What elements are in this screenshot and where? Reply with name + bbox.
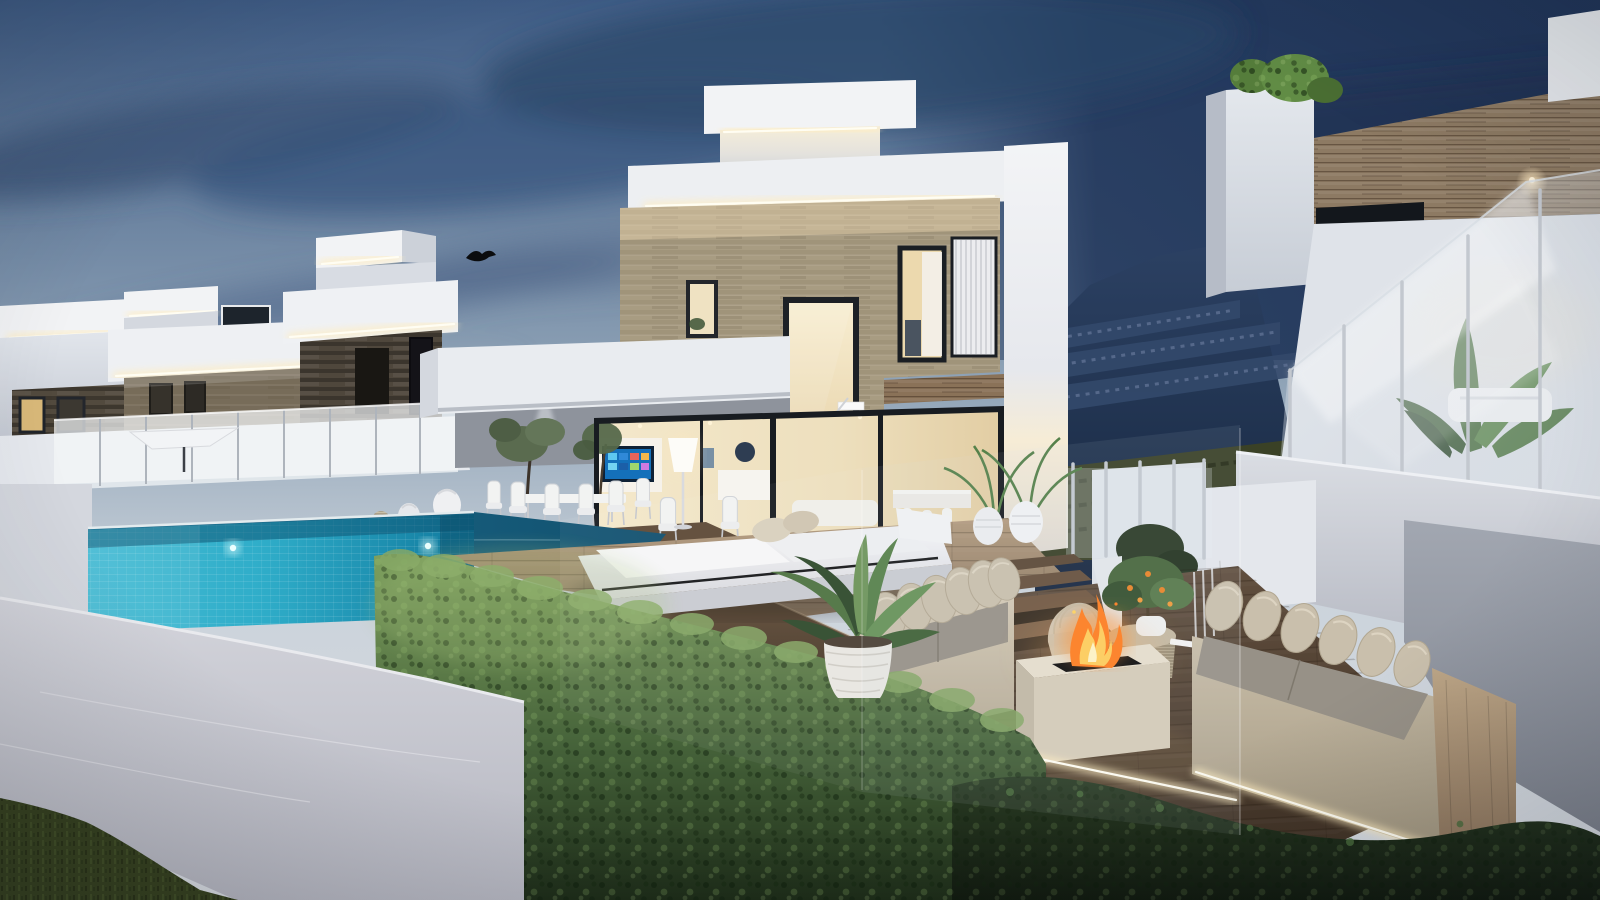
foreground bbox=[0, 0, 1600, 900]
villa-render: modern-luxury-villas-dusk-3d-render bbox=[0, 0, 1600, 900]
vignette bbox=[0, 0, 1600, 900]
villa-render-stage: modern-luxury-villas-dusk-3d-render bbox=[0, 0, 1600, 900]
